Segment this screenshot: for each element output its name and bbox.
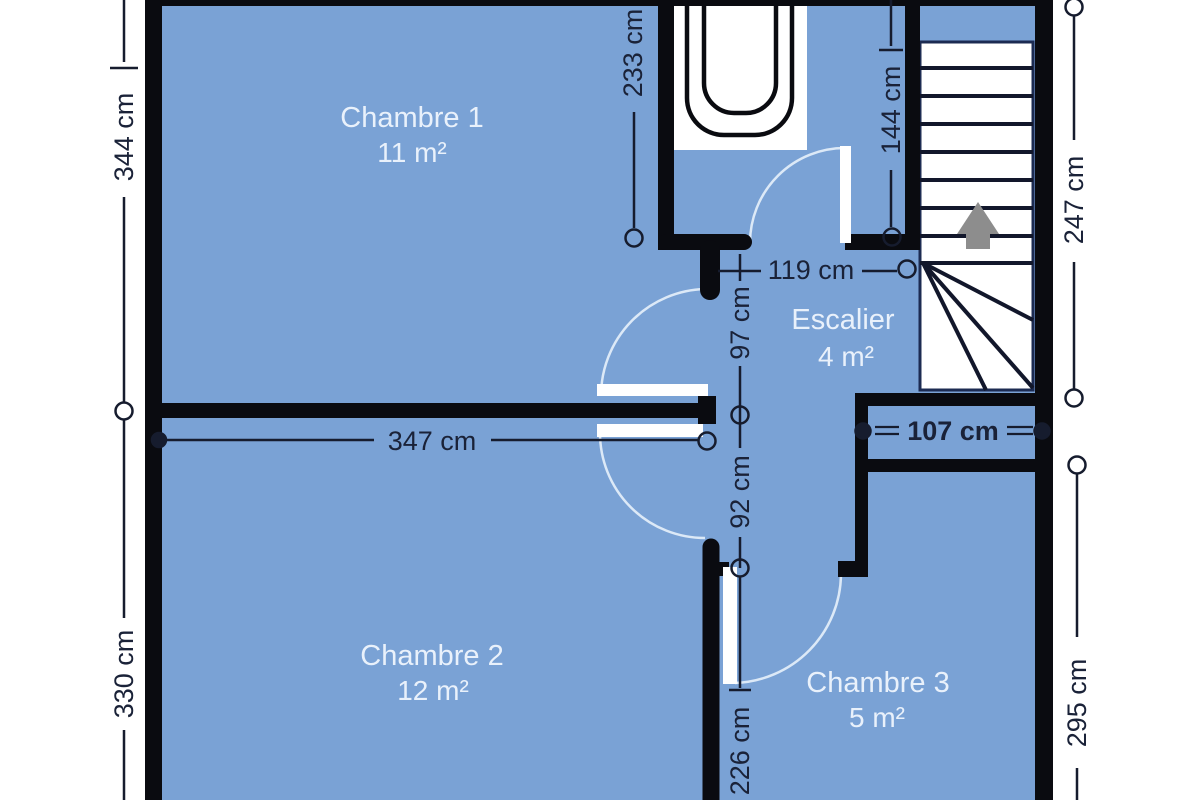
bathtub-inner-basin (704, 0, 776, 113)
chambre3-door-leaf (723, 567, 737, 684)
chambre2-door-leaf (597, 424, 703, 437)
room-area-chambre3: 5 m² (849, 702, 905, 733)
room-area-chambre1: 11 m² (377, 137, 447, 168)
room-area-escalier: 4 m² (818, 341, 874, 372)
dim-label-347: 347 cm (388, 426, 477, 456)
dim-label-247: 247 cm (1059, 156, 1089, 245)
dim-label-119: 119 cm (768, 255, 855, 285)
dim-label-97: 97 cm (725, 286, 755, 360)
floor-plan-drawing: 344 cm 330 cm 233 cm 144 cm 247 cm 295 c… (0, 0, 1200, 800)
room-label-chambre1: Chambre 1 (340, 102, 483, 134)
dim-label-226: 226 cm (725, 707, 755, 796)
room-area-chambre2: 12 m² (397, 675, 469, 706)
wall-left-exterior (145, 0, 162, 800)
dim-label-144: 144 cm (876, 66, 906, 155)
wall-bathroom-left (658, 0, 674, 250)
wall-chambre1-chambre2-divider (153, 403, 715, 418)
dim-label-295: 295 cm (1062, 659, 1092, 748)
bathtub (673, 0, 807, 150)
staircase (920, 42, 1033, 390)
dim-label-92: 92 cm (725, 455, 755, 529)
wall-staircase-left (905, 0, 920, 248)
room-label-chambre2: Chambre 2 (360, 640, 503, 672)
bathroom-door-leaf (840, 146, 851, 243)
room-label-chambre3: Chambre 3 (806, 667, 949, 699)
room-label-escalier: Escalier (791, 304, 894, 336)
wall-chambre3-top (865, 459, 1053, 472)
dim-label-233: 233 cm (618, 9, 648, 98)
chambre1-door-leaf (597, 384, 708, 396)
dim-label-344: 344 cm (109, 93, 139, 182)
dim-label-107: 107 cm (907, 416, 999, 446)
dim-label-330: 330 cm (109, 630, 139, 719)
floor-plan-page: 344 cm 330 cm 233 cm 144 cm 247 cm 295 c… (0, 0, 1200, 800)
wall-chambre3-door-right-stub (838, 561, 868, 577)
wall-divider-end-post (698, 396, 716, 424)
wall-landing-left (855, 393, 868, 577)
wall-staircase-bottom (858, 393, 1053, 406)
